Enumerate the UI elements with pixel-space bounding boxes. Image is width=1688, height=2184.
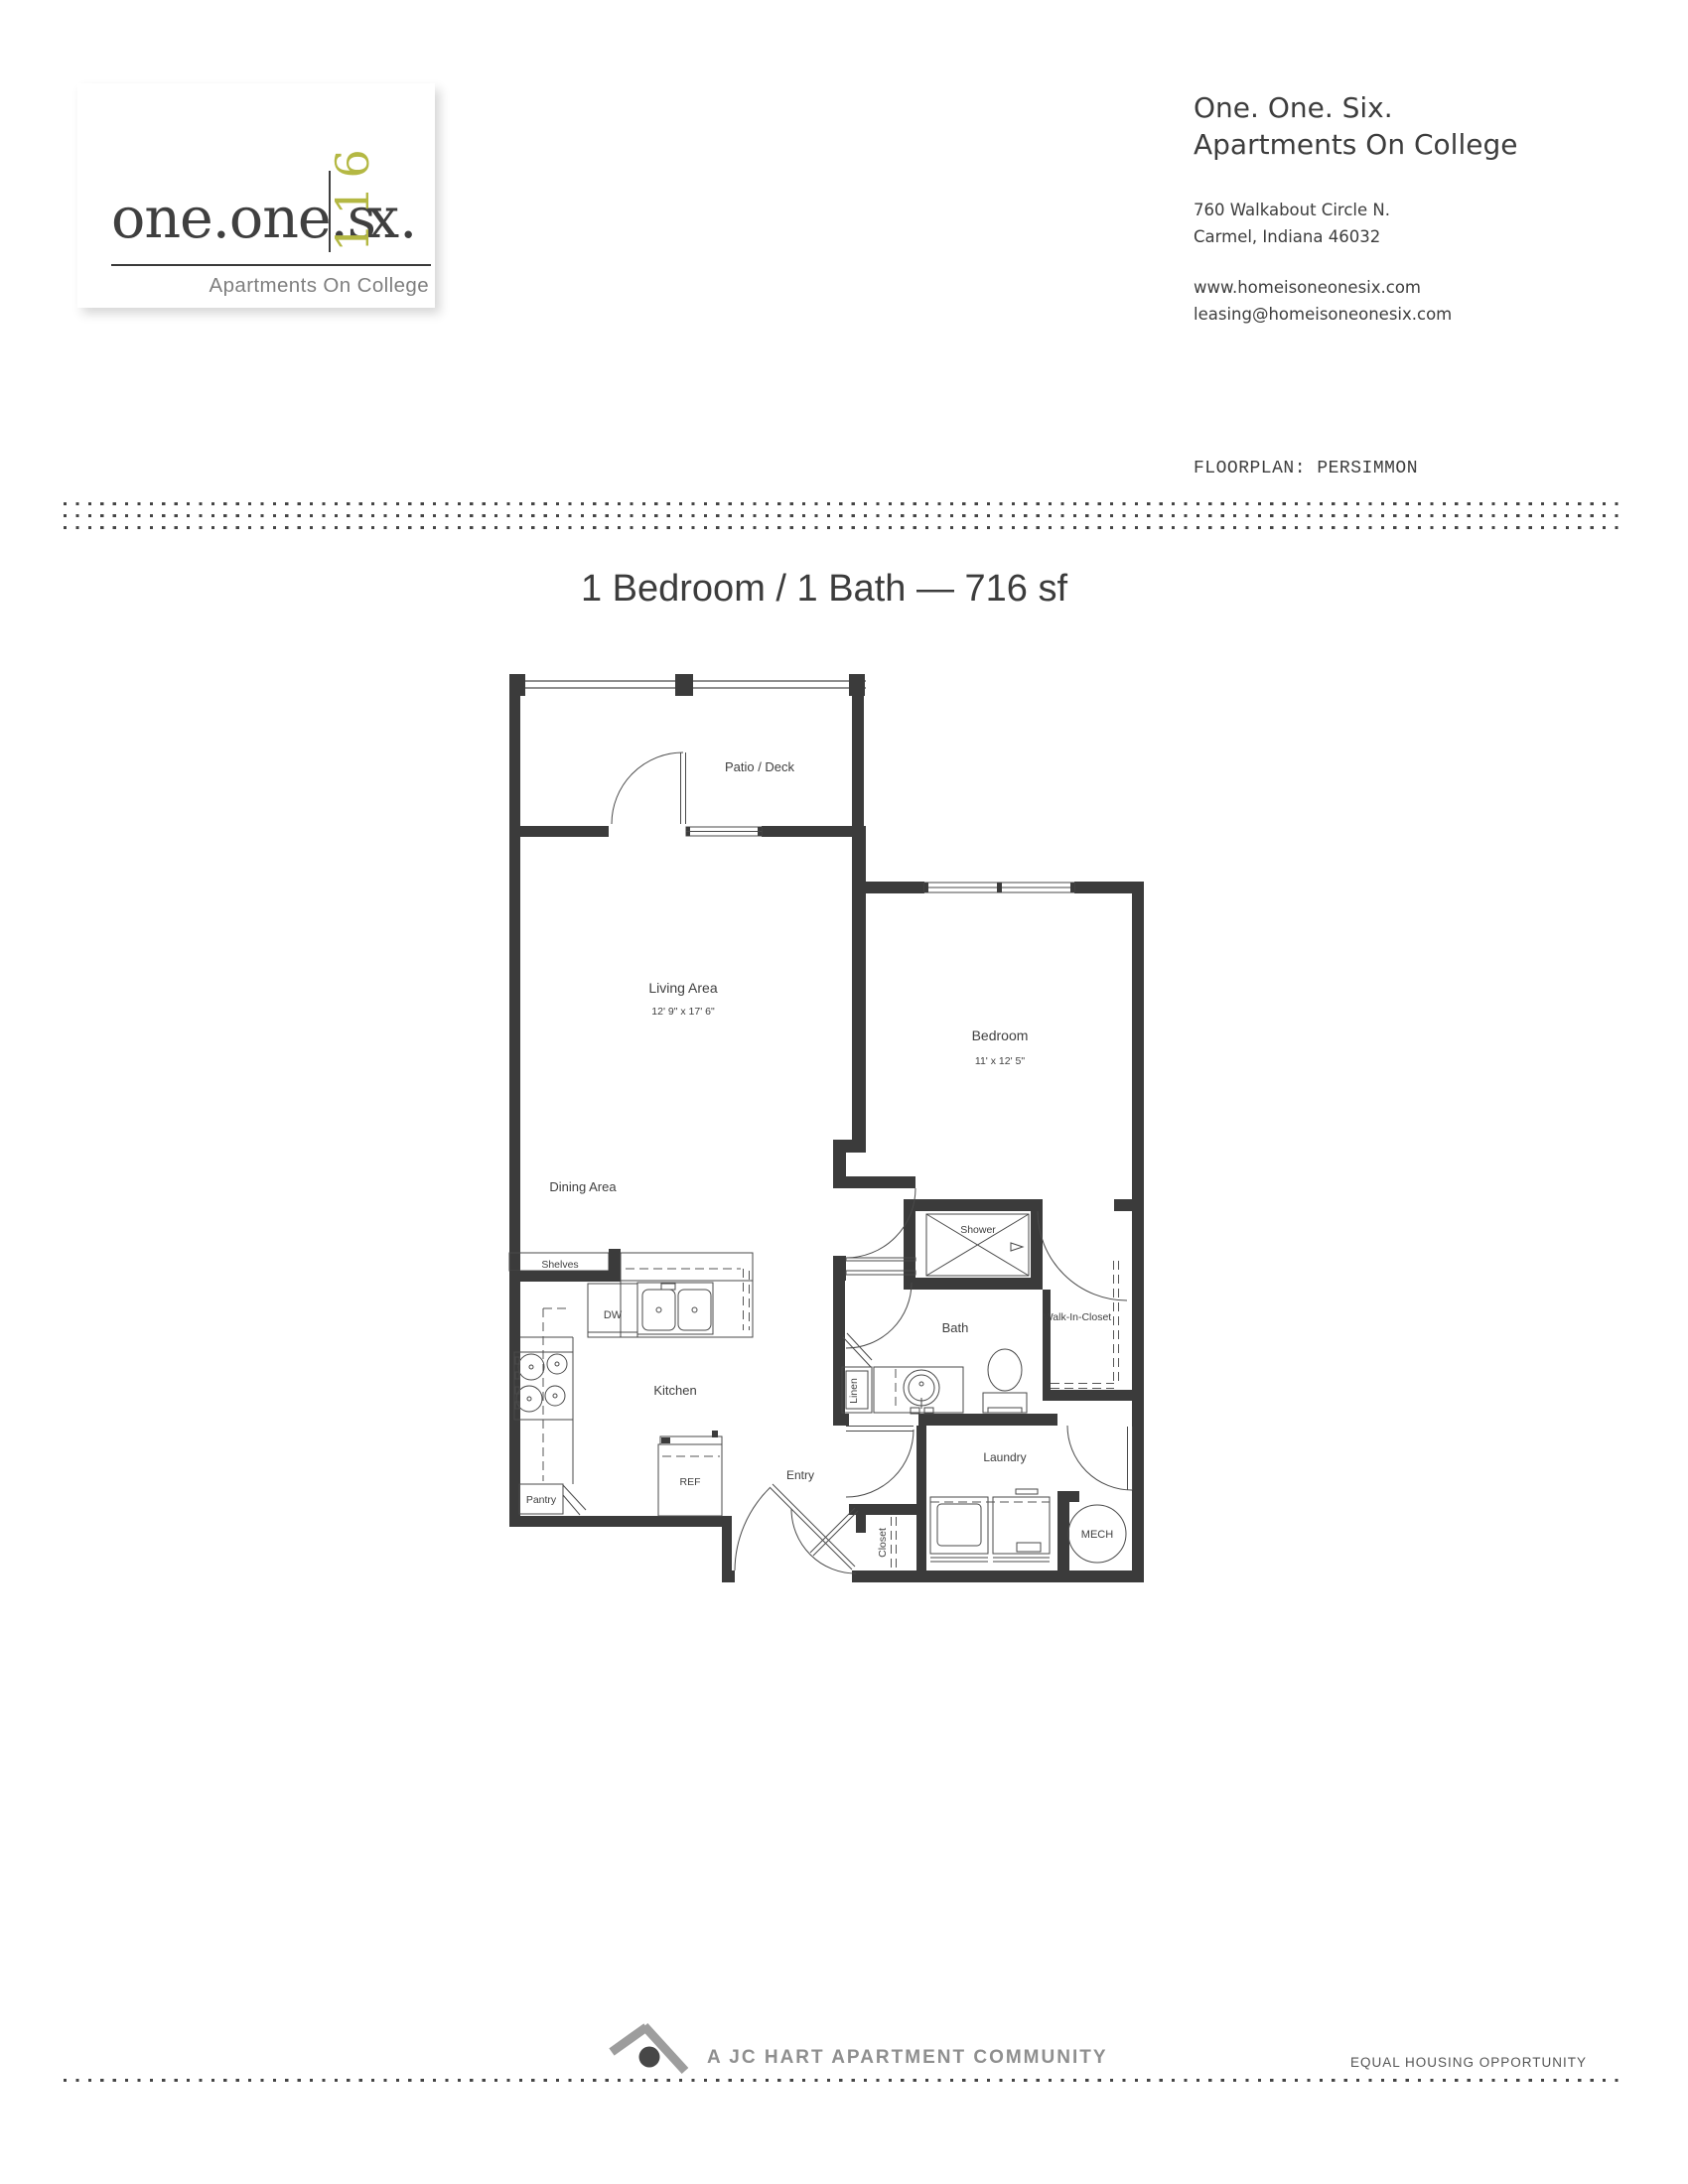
floorplan-name-label: FLOORPLAN: PERSIMMON <box>1194 459 1418 478</box>
property-address: 760 Walkabout Circle N. Carmel, Indiana … <box>1194 197 1390 250</box>
logo-card: one.one.s 116 x. Apartments On College <box>77 83 435 308</box>
floorplan-flyer-page: one.one.s 116 x. Apartments On College O… <box>0 0 1688 2184</box>
website-link[interactable]: www.homeisoneonesix.com <box>1194 274 1452 301</box>
exterior-walls <box>509 685 1144 1582</box>
bedroom-window <box>924 883 1074 892</box>
label-laundry: Laundry <box>983 1450 1026 1464</box>
refrigerator <box>658 1431 722 1516</box>
logo-tagline: Apartments On College <box>77 274 429 298</box>
patio-window <box>686 827 762 836</box>
label-mech: MECH <box>1081 1529 1113 1541</box>
toilet <box>983 1349 1027 1413</box>
address-line2: Carmel, Indiana 46032 <box>1194 223 1390 250</box>
property-title-line2: Apartments On College <box>1194 126 1517 163</box>
label-entry-closet: Closet <box>877 1528 889 1558</box>
label-dining-area: Dining Area <box>549 1179 617 1194</box>
label-linen: Linen <box>848 1378 860 1404</box>
jchart-house-icon <box>584 2019 693 2079</box>
label-bath: Bath <box>942 1320 969 1335</box>
plan-title: 1 Bedroom / 1 Bath — 716 sf <box>496 568 1152 611</box>
washer <box>930 1497 988 1562</box>
logo-number-116: 116 <box>336 141 369 252</box>
floor-plan: Patio / Deck Living Area 12' 9" x 17' 6"… <box>496 665 1152 1588</box>
laundry-door <box>846 1427 914 1498</box>
address-line1: 760 Walkabout Circle N. <box>1194 197 1390 223</box>
label-living-dim: 12' 9" x 17' 6" <box>651 1006 715 1018</box>
label-entry: Entry <box>786 1468 814 1482</box>
footer-dotted-line <box>64 2079 1624 2082</box>
mech-door <box>1067 1426 1133 1490</box>
kitchen-sink <box>637 1283 713 1334</box>
email-link[interactable]: leasing@homeisoneonesix.com <box>1194 301 1452 328</box>
dotted-separator <box>64 502 1624 538</box>
shower-head-icon <box>1011 1243 1023 1251</box>
closet-rods <box>1051 1261 1119 1389</box>
label-patio-deck: Patio / Deck <box>725 759 795 774</box>
label-dw: DW <box>604 1309 623 1321</box>
label-bedroom: Bedroom <box>972 1027 1029 1043</box>
entry-closet-door <box>791 1508 858 1573</box>
logo-wordmark-post: x. <box>367 189 417 248</box>
bath-vanity <box>874 1367 963 1414</box>
property-title: One. One. Six. Apartments On College <box>1194 89 1517 163</box>
footer-community-text: A JC HART APARTMENT COMMUNITY <box>707 2047 1108 2069</box>
entry-door <box>735 1484 855 1570</box>
property-title-line1: One. One. Six. <box>1194 89 1517 126</box>
footer-eho-text: EQUAL HOUSING OPPORTUNITY <box>1291 2055 1587 2070</box>
patio-railing <box>509 674 866 696</box>
logo-underline <box>111 264 431 266</box>
walk-in-closet-door <box>1038 1211 1127 1300</box>
entry-closet-rod <box>892 1517 897 1569</box>
kitchen-counter <box>520 1253 753 1484</box>
label-living-area: Living Area <box>648 980 717 996</box>
label-shelves: Shelves <box>541 1259 578 1271</box>
label-pantry: Pantry <box>526 1494 557 1506</box>
label-ref: REF <box>680 1476 701 1488</box>
patio-door <box>612 752 686 824</box>
label-shower: Shower <box>960 1224 996 1236</box>
label-walk-in-closet: Walk-In-Closet <box>1044 1311 1112 1323</box>
label-bedroom-dim: 11' x 12' 5" <box>975 1055 1025 1067</box>
label-kitchen: Kitchen <box>653 1383 696 1398</box>
dryer <box>930 1489 1050 1562</box>
property-contact: www.homeisoneonesix.com leasing@homeison… <box>1194 274 1452 328</box>
